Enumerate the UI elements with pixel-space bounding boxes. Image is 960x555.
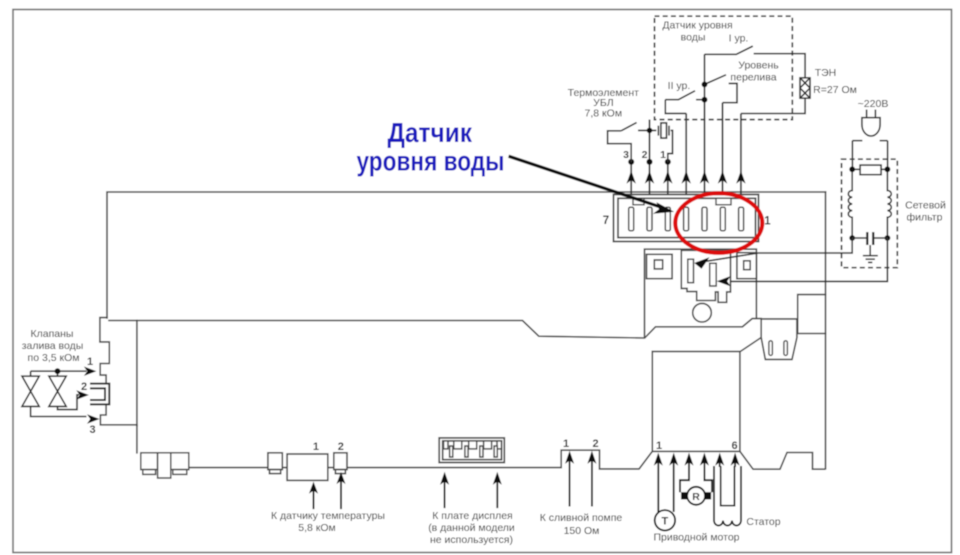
svg-text:Клапаны: Клапаны — [31, 328, 74, 340]
svg-text:фильтр: фильтр — [907, 212, 943, 224]
svg-text:Статор: Статор — [746, 516, 780, 528]
svg-text:К сливной помпе: К сливной помпе — [540, 512, 623, 524]
svg-text:150 Ом: 150 Ом — [564, 525, 600, 537]
svg-text:II ур.: II ур. — [668, 80, 691, 92]
svg-text:воды: воды — [681, 32, 706, 44]
svg-text:I ур.: I ур. — [729, 33, 749, 45]
svg-text:ТЭН: ТЭН — [815, 67, 837, 79]
svg-text:1: 1 — [563, 438, 569, 450]
svg-text:1: 1 — [87, 356, 93, 368]
svg-text:Сетевой: Сетевой — [905, 200, 946, 212]
svg-text:Т: Т — [662, 516, 669, 528]
svg-text:Датчик уровня: Датчик уровня — [662, 20, 732, 32]
svg-text:(в данной модели: (в данной модели — [428, 522, 515, 534]
svg-text:7,8 кОм: 7,8 кОм — [585, 108, 623, 120]
svg-text:5,8 кОм: 5,8 кОм — [298, 522, 336, 534]
svg-text:Уровень: Уровень — [738, 60, 779, 72]
svg-text:уровня воды: уровня воды — [357, 146, 505, 177]
svg-text:3: 3 — [623, 149, 629, 161]
svg-text:7: 7 — [603, 215, 609, 227]
svg-text:~220В: ~220В — [858, 98, 889, 110]
svg-text:по 3,5 кОм: по 3,5 кОм — [28, 352, 80, 364]
svg-text:К датчику температуры: К датчику температуры — [271, 510, 385, 522]
svg-text:R=27 Ом: R=27 Ом — [813, 84, 857, 96]
svg-text:не используется): не используется) — [430, 534, 513, 546]
svg-text:2: 2 — [592, 438, 598, 450]
svg-text:3: 3 — [89, 424, 95, 436]
svg-text:перелива: перелива — [730, 72, 776, 84]
svg-text:R: R — [692, 491, 700, 503]
svg-text:залива воды: залива воды — [22, 340, 84, 352]
svg-text:2: 2 — [81, 381, 87, 393]
svg-text:К плате дисплея: К плате дисплея — [432, 510, 512, 522]
svg-text:Приводной мотор: Приводной мотор — [653, 532, 739, 544]
svg-text:1: 1 — [660, 149, 666, 161]
svg-text:1: 1 — [313, 441, 319, 453]
svg-text:2: 2 — [338, 441, 344, 453]
svg-text:1: 1 — [656, 440, 662, 452]
svg-text:Датчик: Датчик — [388, 117, 473, 148]
svg-text:2: 2 — [642, 149, 648, 161]
svg-text:6: 6 — [731, 440, 737, 452]
svg-text:1: 1 — [764, 216, 771, 228]
